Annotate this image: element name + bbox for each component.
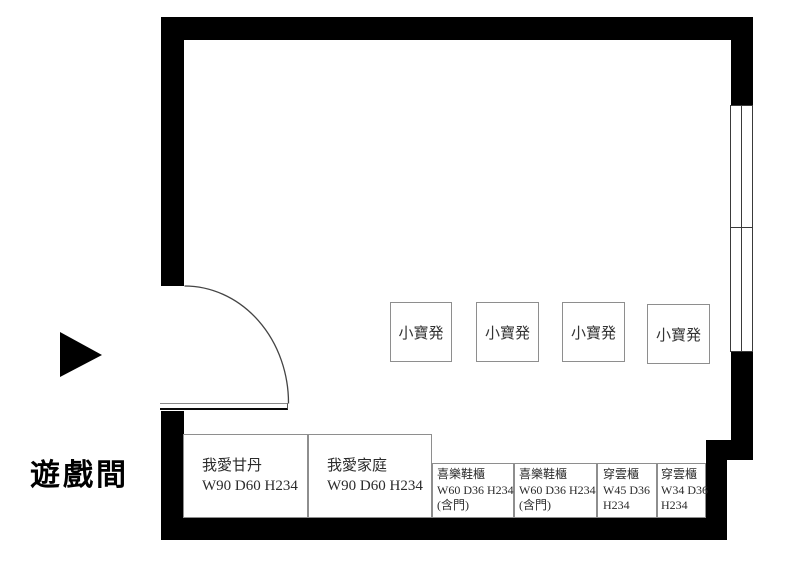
cabinet-box: 喜樂鞋櫃 W60 D36 H234 (含門): [514, 463, 597, 518]
stool-box: 小寶発: [562, 302, 625, 362]
window: [730, 105, 753, 352]
stool-label: 小寶発: [571, 322, 616, 343]
cabinet-dimensions: H234: [661, 498, 705, 514]
direction-arrow-icon: [60, 332, 102, 377]
stool-label: 小寶発: [398, 322, 443, 343]
cabinet-box: 我愛家庭 W90 D60 H234: [308, 434, 432, 518]
stool-box: 小寶発: [476, 302, 539, 362]
stool-box: 小寶発: [390, 302, 452, 362]
wall-right-upper: [731, 17, 753, 105]
cabinet-note: (含門): [519, 498, 596, 514]
cabinet-note: (含門): [437, 498, 513, 514]
cabinet-dimensions: W60 D36 H234: [437, 483, 513, 499]
cabinet-name: 我愛甘丹: [202, 456, 307, 476]
floor-plan-canvas: 小寶発 小寶発 小寶発 小寶発 我愛甘丹 W90 D60 H234 我愛家庭 W…: [0, 0, 791, 569]
cabinet-name: 穿雲櫃: [661, 467, 705, 483]
stool-label: 小寶発: [656, 324, 701, 345]
cabinet-dimensions: W45 D36: [603, 483, 656, 499]
cabinet-name: 我愛家庭: [327, 456, 431, 476]
door-swing-arc: [184, 286, 290, 405]
cabinet-dimensions: W90 D60 H234: [202, 476, 307, 496]
wall-right-mid: [731, 352, 753, 440]
wall-bottom: [161, 518, 727, 540]
wall-right-lower: [706, 460, 727, 518]
cabinet-box: 穿雲櫃 W45 D36 H234: [597, 463, 657, 518]
wall-left-upper: [161, 17, 184, 286]
cabinet-name: 喜樂鞋櫃: [437, 467, 513, 483]
cabinet-box: 喜樂鞋櫃 W60 D36 H234 (含門): [432, 463, 514, 518]
wall-corner-block: [706, 440, 753, 460]
cabinet-dimensions: W90 D60 H234: [327, 476, 431, 496]
window-divider-line: [731, 227, 752, 228]
cabinet-dimensions: H234: [603, 498, 656, 514]
cabinet-name: 穿雲櫃: [603, 467, 656, 483]
cabinet-dimensions: W34 D36: [661, 483, 705, 499]
stool-label: 小寶発: [485, 322, 530, 343]
stool-box: 小寶発: [647, 304, 710, 364]
room-title: 遊戲間: [30, 450, 129, 494]
cabinet-dimensions: W60 D36 H234: [519, 483, 596, 499]
cabinet-box: 穿雲櫃 W34 D36 H234: [657, 463, 706, 518]
wall-top: [161, 17, 753, 40]
cabinet-box: 我愛甘丹 W90 D60 H234: [183, 434, 308, 518]
cabinet-name: 喜樂鞋櫃: [519, 467, 596, 483]
window-mullion-line: [741, 106, 742, 351]
